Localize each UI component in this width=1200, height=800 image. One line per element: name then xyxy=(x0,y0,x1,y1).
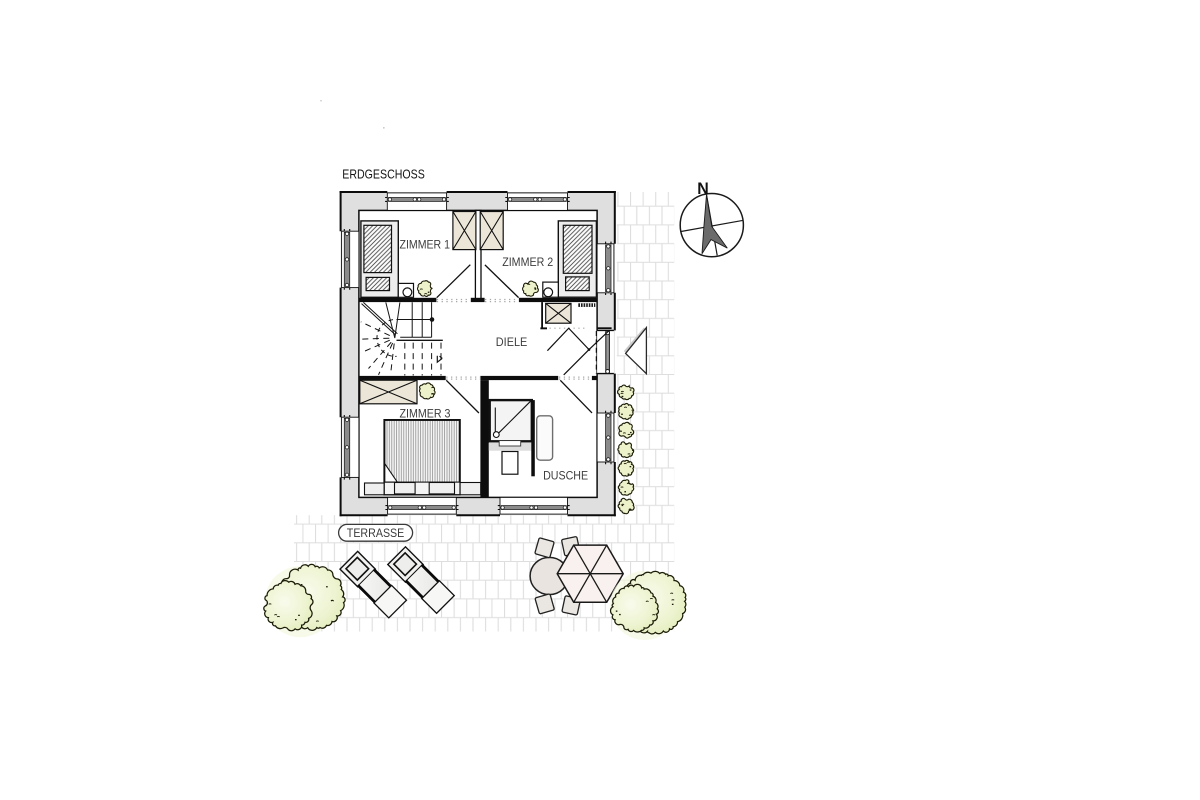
svg-text:DUSCHE: DUSCHE xyxy=(543,471,588,483)
svg-text:N: N xyxy=(697,179,709,198)
svg-text:DIELE: DIELE xyxy=(496,337,528,349)
svg-text:TERRASSE: TERRASSE xyxy=(347,526,405,540)
svg-text:ZIMMER 1: ZIMMER 1 xyxy=(400,239,451,251)
svg-text:ERDGESCHOSS: ERDGESCHOSS xyxy=(342,168,425,182)
svg-text:ZIMMER 3: ZIMMER 3 xyxy=(400,409,451,421)
svg-text:ZIMMER 2: ZIMMER 2 xyxy=(502,257,553,269)
